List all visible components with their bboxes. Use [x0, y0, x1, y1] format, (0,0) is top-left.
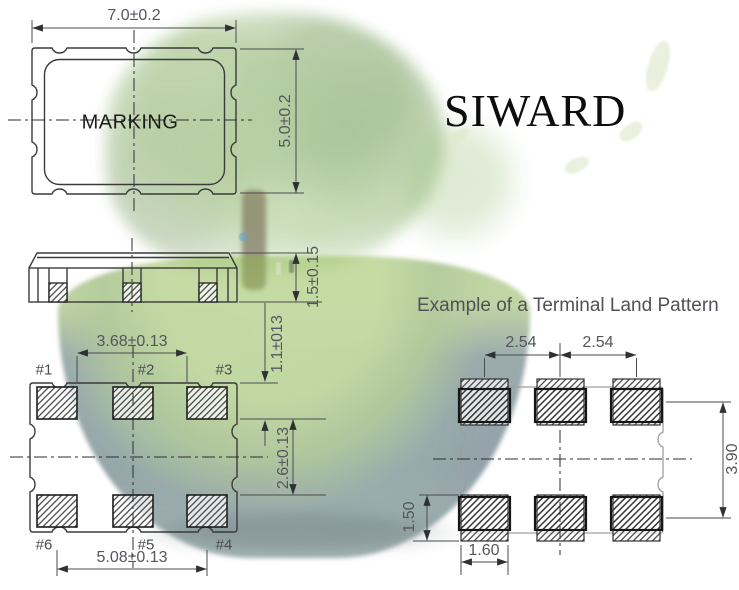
siward-logo: SIWARD: [444, 84, 644, 137]
dim-pitch-left-label: 2.54: [505, 334, 536, 352]
dim-pad-inner-span-label: 3.68±0.13: [96, 333, 167, 351]
pad-label-6: #6: [36, 537, 53, 554]
pad-label-5: #5: [138, 537, 155, 554]
pad-label-1: #1: [36, 362, 53, 379]
dim-row-gap-label: 2.6±0.13: [275, 427, 293, 489]
land-pattern-title: Example of a Terminal Land Pattern: [417, 295, 719, 317]
pad-label-2: #2: [138, 362, 155, 379]
dim-thickness-label: 1.5±0.15: [305, 246, 323, 308]
dim-width-label: 7.0±0.2: [107, 7, 160, 25]
dim-edge-to-pad-label: 1.1±013: [269, 315, 287, 373]
dim-pad-outer-span-label: 5.08±0.13: [96, 549, 167, 567]
side-view-pads: [49, 283, 217, 302]
dim-pad-height-label: 1.50: [401, 501, 419, 532]
dim-pitch-right-label: 2.54: [582, 334, 613, 352]
dim-height-label: 5.0±0.2: [277, 94, 295, 147]
pad-label-4: #4: [216, 537, 233, 554]
dim-pad-width-label: 1.60: [468, 542, 499, 560]
top-view-dimensions: [32, 20, 304, 193]
marking-label: MARKING: [82, 112, 179, 135]
pad-label-3: #3: [216, 362, 233, 379]
dim-vertical-span-label: 3.90: [724, 443, 739, 474]
